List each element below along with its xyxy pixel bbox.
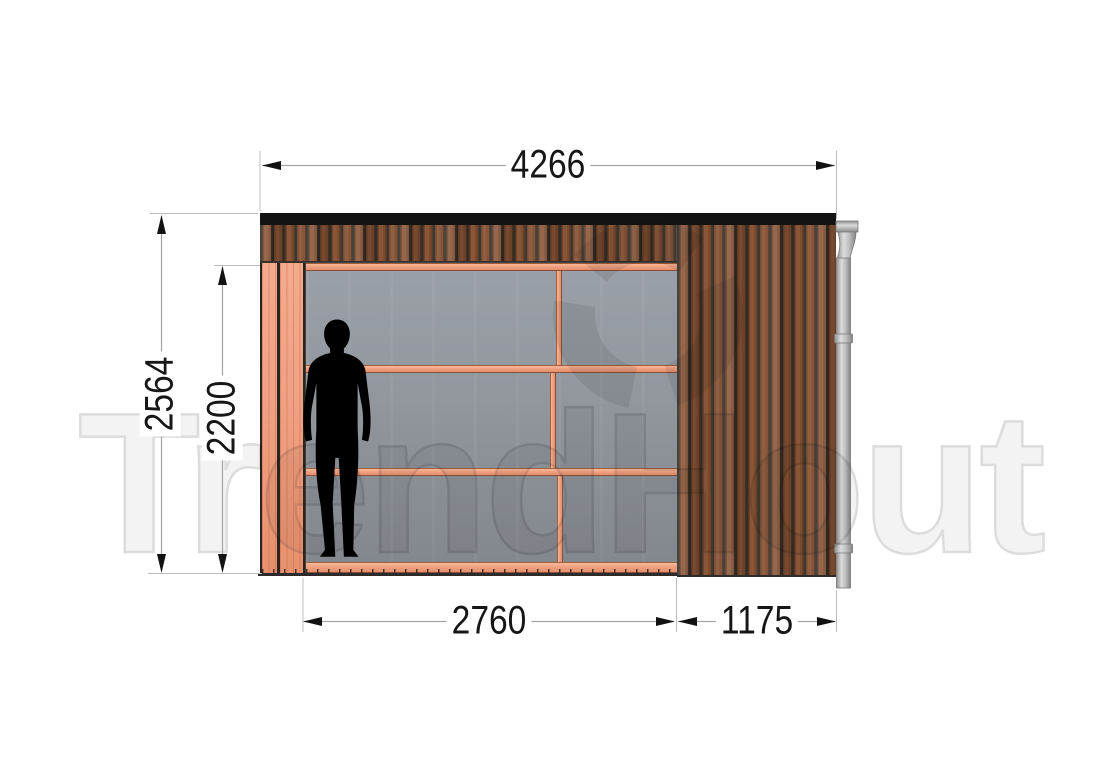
top-cladding-band bbox=[260, 225, 677, 263]
glass-mullion-row1 bbox=[556, 271, 562, 365]
left-frame-posts bbox=[260, 263, 306, 575]
downpipe-elbow bbox=[837, 232, 856, 259]
downpipe-outlet bbox=[836, 221, 858, 232]
downpipe-coupling-upper bbox=[835, 334, 853, 343]
roof-fascia bbox=[260, 213, 836, 225]
building-base-line bbox=[258, 573, 677, 576]
dim-label-side-section-width: 1175 bbox=[716, 601, 798, 642]
left-post-outer bbox=[262, 263, 277, 575]
glass-rail-2 bbox=[306, 468, 677, 476]
dim-label-glass-section-width: 2760 bbox=[447, 601, 532, 642]
glass-top-rail bbox=[306, 263, 677, 271]
left-post-inner bbox=[280, 263, 303, 575]
dim-label-opening-height: 2200 bbox=[202, 376, 243, 461]
glass-mullion-row3 bbox=[557, 476, 563, 562]
glass-mullion-row2 bbox=[550, 373, 556, 468]
dim-label-overall-height: 2564 bbox=[140, 352, 181, 437]
dim-label-overall-width: 4266 bbox=[506, 145, 591, 186]
right-cladding-panel bbox=[677, 225, 836, 577]
glass-sliding-wall bbox=[306, 263, 677, 573]
elevation-drawing-canvas: TrendHout bbox=[0, 0, 1120, 770]
downpipe-tube bbox=[837, 258, 851, 588]
downpipe-coupling-lower bbox=[835, 544, 853, 553]
glass-rail-1 bbox=[306, 365, 677, 373]
